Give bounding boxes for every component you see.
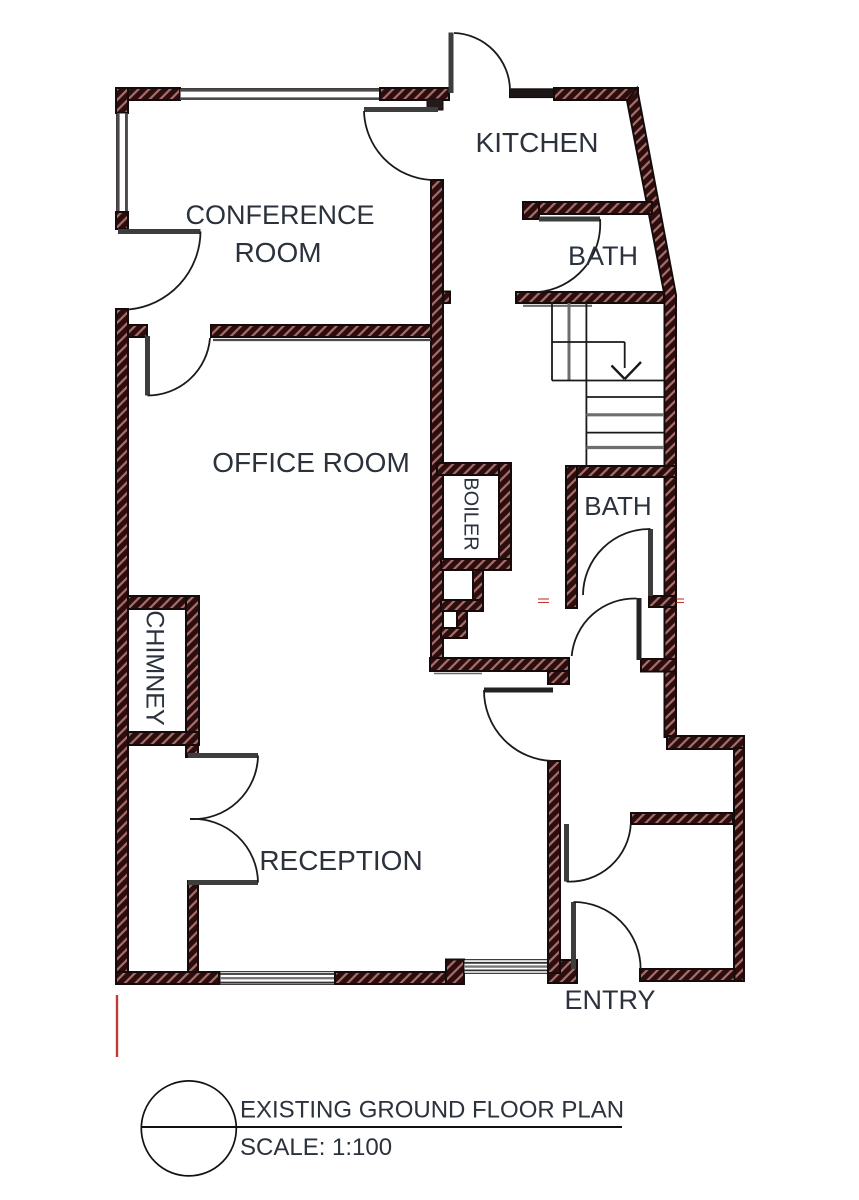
svg-text:RECEPTION: RECEPTION <box>259 845 422 876</box>
svg-text:ROOM: ROOM <box>234 237 321 268</box>
svg-text:BATH: BATH <box>568 241 638 271</box>
svg-text:CHIMNEY: CHIMNEY <box>141 610 169 726</box>
svg-text:OFFICE ROOM: OFFICE ROOM <box>212 447 410 478</box>
svg-text:ENTRY: ENTRY <box>564 985 655 1015</box>
svg-text:KITCHEN: KITCHEN <box>476 127 599 158</box>
svg-text:BATH: BATH <box>584 491 651 521</box>
svg-text:CONFERENCE: CONFERENCE <box>185 200 374 230</box>
svg-text:SCALE: 1:100: SCALE: 1:100 <box>240 1134 392 1161</box>
svg-text:EXISTING GROUND FLOOR PLAN: EXISTING GROUND FLOOR PLAN <box>240 1097 624 1124</box>
svg-text:BOILER: BOILER <box>460 477 482 550</box>
